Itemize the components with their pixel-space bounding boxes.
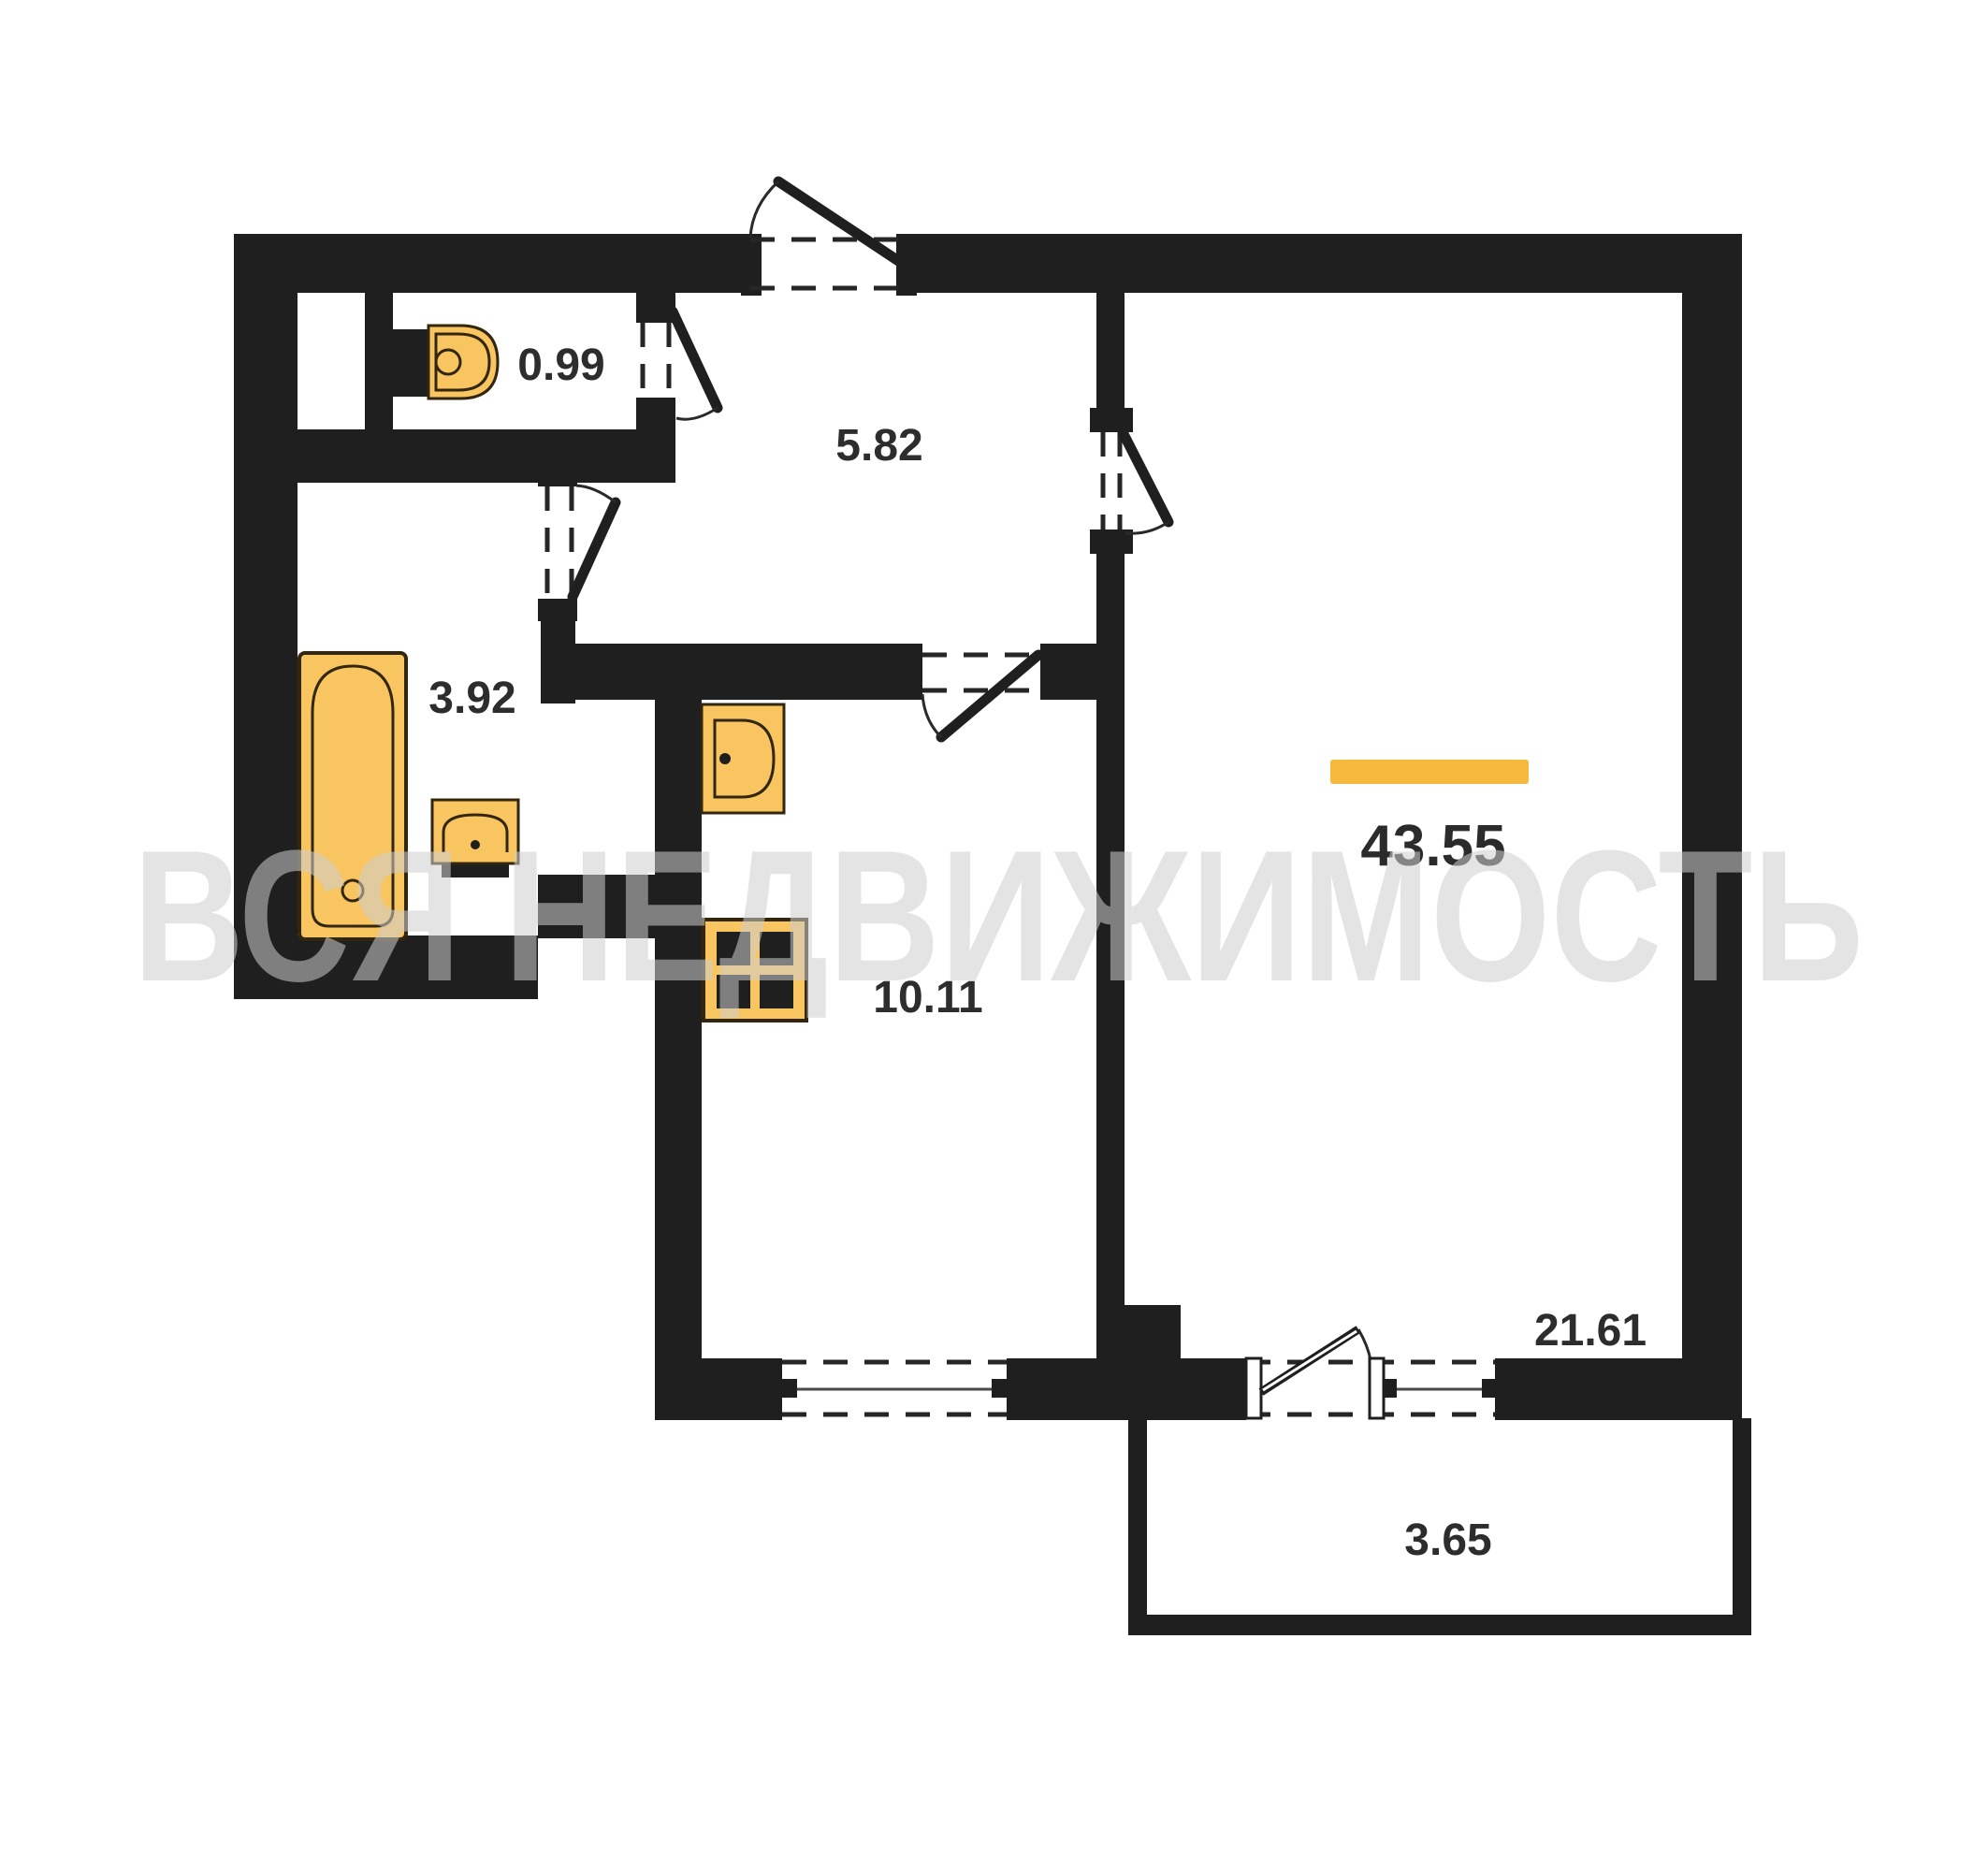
wall-toilet-niche-stub [365, 293, 393, 429]
floor-plan-page: 0.99 5.82 3.92 10.11 21.61 3.65 43.55 ВС… [0, 0, 1988, 1871]
wall-living-corner-pier [1096, 1305, 1181, 1361]
balcony-window-end-left [1384, 1379, 1397, 1398]
wall-bathroom-right-lower [541, 619, 575, 703]
wall-living-bottom-right [1495, 1358, 1742, 1420]
balcony-door-arc [1358, 1329, 1371, 1360]
living-door-leaf [1123, 432, 1168, 522]
wall-hall-bottom-left [575, 644, 922, 700]
balcony-door-block [1246, 1329, 1495, 1418]
kitchen-window [782, 1379, 1007, 1398]
wall-balcony-bottom [1128, 1615, 1751, 1635]
watermark-text: ВСЯ НЕДВИЖИМОСТЬ [133, 812, 1864, 1021]
toilet-door-dashes [643, 323, 669, 398]
wall-bathroom-door-hinge-bottom [538, 599, 577, 621]
wall-balcony-right [1733, 1418, 1751, 1635]
toilet-bowl [428, 326, 498, 399]
wall-toilet-bottom [297, 429, 675, 483]
kitchen-window-end-left [782, 1379, 797, 1398]
kitchen-door-arc [922, 694, 941, 737]
balcony-window-end-right [1482, 1379, 1495, 1398]
bathroom-door-dashes [547, 486, 572, 599]
toilet-door-arc [676, 408, 718, 419]
room-label-toilet: 0.99 [517, 341, 604, 390]
wall-living-bottom-left [1125, 1358, 1246, 1420]
wall-living-door-hinge-top [1090, 408, 1133, 432]
wall-top-right [912, 234, 1742, 293]
wall-toilet-door-hinge [636, 398, 675, 435]
kitchen-window-end-right [992, 1379, 1007, 1398]
entrance-door-arc [750, 181, 778, 238]
kitchen-sink-icon [702, 704, 784, 813]
wall-top-left [234, 234, 748, 293]
floor-plan-svg: 0.99 5.82 3.92 10.11 21.61 3.65 43.55 ВС… [0, 0, 1988, 1871]
wall-balcony-left [1128, 1418, 1147, 1635]
wall-bathroom-door-hinge-top [538, 463, 577, 486]
living-door-dashes [1103, 432, 1120, 529]
balcony-door-frame-mid [1370, 1358, 1384, 1418]
toilet-icon [393, 326, 498, 399]
balcony-door-frame-left [1246, 1358, 1261, 1418]
bathroom-door-leaf [573, 502, 616, 597]
room-label-balcony: 3.65 [1404, 1516, 1491, 1565]
total-area-accent-bar [1330, 760, 1529, 784]
toilet-tank [393, 329, 428, 397]
bathroom-door-arc [576, 486, 616, 502]
kitchen-sink-faucet [719, 753, 731, 764]
wall-living-left-top [1096, 293, 1125, 426]
kitchen-door-leaf [941, 655, 1038, 737]
room-label-bathroom: 3.92 [428, 674, 515, 723]
entrance-door-leaf [778, 181, 906, 266]
wall-kitchen-bottom-left [655, 1358, 782, 1420]
wall-kitchen-left [655, 644, 702, 1420]
toilet-door-leaf [673, 312, 718, 408]
wall-kitchen-bottom-right [1007, 1358, 1125, 1420]
wall-hall-bottom-right [1040, 644, 1096, 700]
room-label-hallway: 5.82 [835, 421, 922, 471]
room-label-living: 21.61 [1534, 1306, 1647, 1356]
